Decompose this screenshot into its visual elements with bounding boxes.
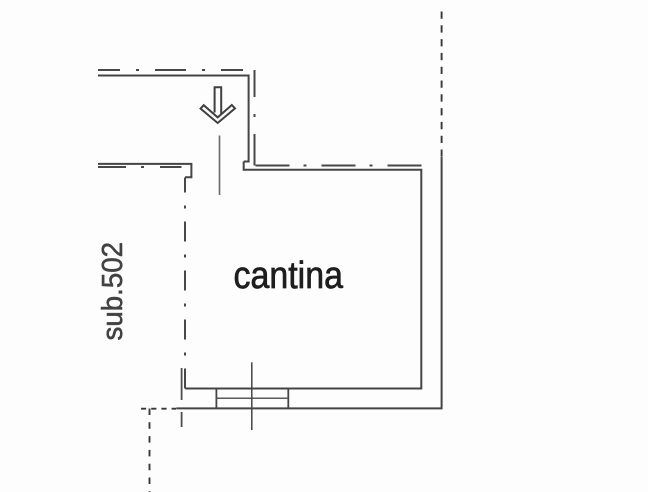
svg-text:sub.502: sub.502	[97, 242, 129, 341]
svg-text:cantina: cantina	[234, 255, 344, 297]
